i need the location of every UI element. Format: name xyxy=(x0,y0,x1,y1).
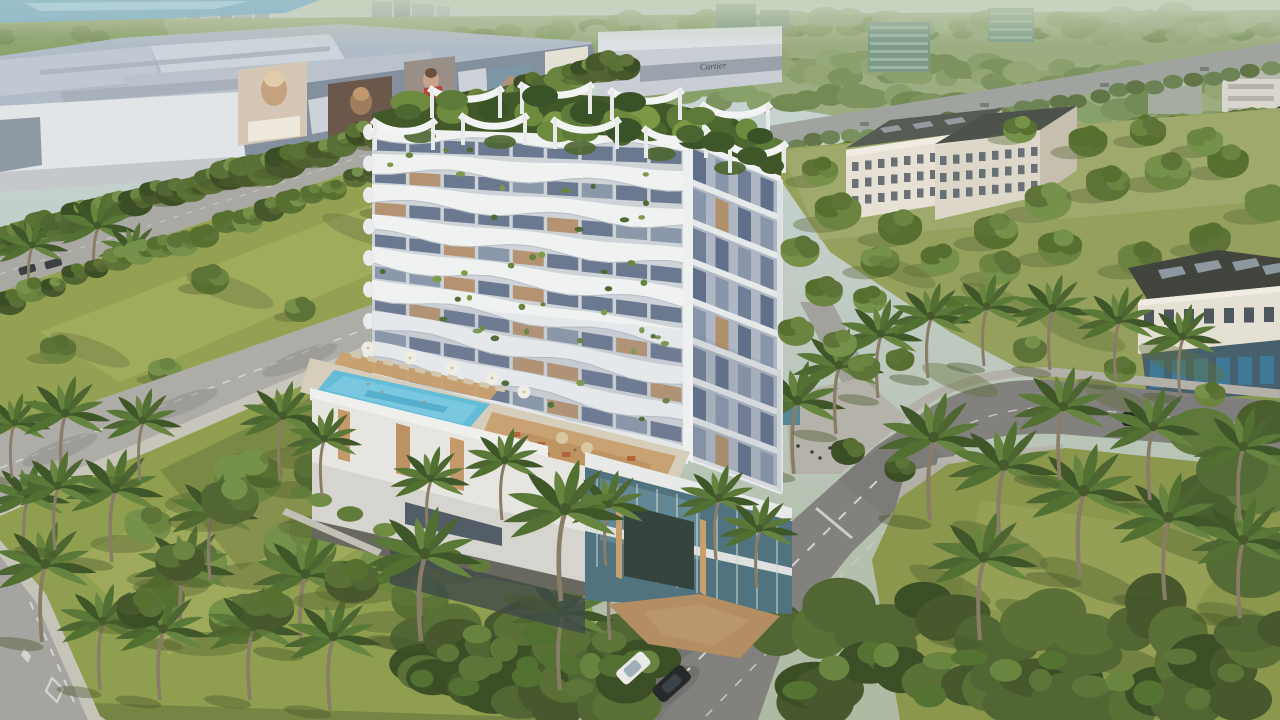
svg-text:Cartier: Cartier xyxy=(699,60,727,72)
